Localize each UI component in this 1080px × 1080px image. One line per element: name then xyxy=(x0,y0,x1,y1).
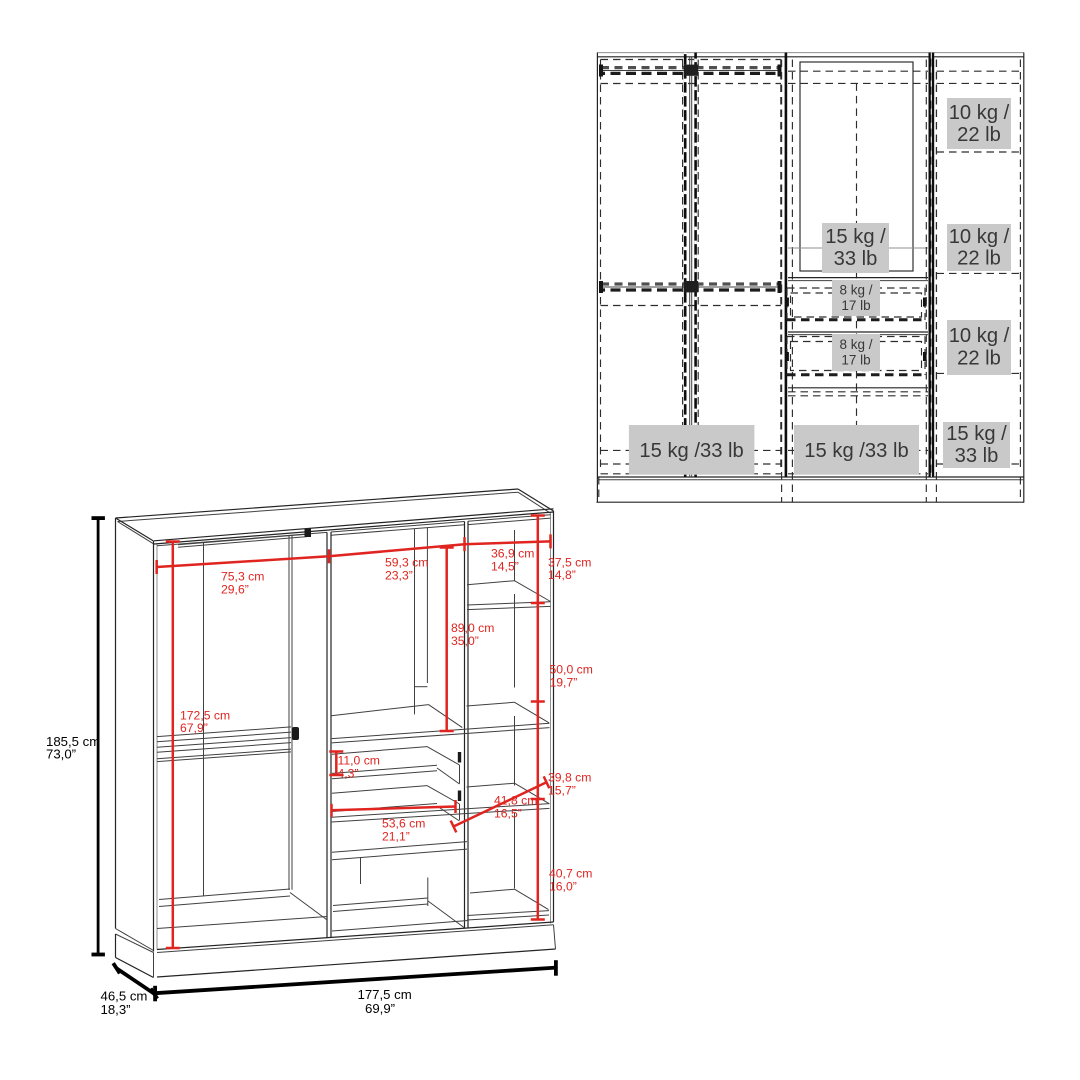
svg-text:29,6”: 29,6” xyxy=(221,583,249,597)
svg-text:89,0 cm: 89,0 cm xyxy=(451,621,494,635)
svg-text:8 kg /: 8 kg / xyxy=(839,283,872,298)
svg-text:41,8 cm: 41,8 cm xyxy=(494,794,537,808)
svg-text:39,8 cm: 39,8 cm xyxy=(548,771,591,785)
svg-text:59,3 cm: 59,3 cm xyxy=(385,556,428,570)
svg-text:75,3 cm: 75,3 cm xyxy=(221,570,264,584)
svg-text:17 lb: 17 lb xyxy=(841,298,870,313)
svg-text:4,3”: 4,3” xyxy=(338,767,359,781)
svg-text:10 kg /: 10 kg / xyxy=(949,226,1010,248)
svg-text:16,0”: 16,0” xyxy=(549,880,577,894)
svg-text:18,3”: 18,3” xyxy=(101,1002,131,1017)
svg-text:19,7”: 19,7” xyxy=(550,676,578,690)
svg-text:22 lb: 22 lb xyxy=(957,124,1001,146)
svg-text:33 lb: 33 lb xyxy=(955,445,999,467)
svg-text:11,0 cm: 11,0 cm xyxy=(338,754,380,768)
svg-text:14,5”: 14,5” xyxy=(491,560,519,574)
svg-text:177,5 cm: 177,5 cm xyxy=(358,987,412,1002)
svg-text:22 lb: 22 lb xyxy=(957,348,1001,370)
svg-text:15 kg /33 lb: 15 kg /33 lb xyxy=(804,440,908,462)
svg-text:40,7 cm: 40,7 cm xyxy=(549,867,592,881)
svg-text:67,9”: 67,9” xyxy=(180,721,208,735)
svg-text:21,1”: 21,1” xyxy=(382,830,410,844)
svg-text:36,9 cm: 36,9 cm xyxy=(491,547,534,561)
svg-text:15,7”: 15,7” xyxy=(548,784,576,798)
svg-text:14,8”: 14,8” xyxy=(548,568,576,582)
svg-text:15 kg /: 15 kg / xyxy=(825,226,886,248)
svg-text:16,5”: 16,5” xyxy=(494,807,522,821)
svg-text:15 kg /: 15 kg / xyxy=(946,423,1007,445)
svg-text:69,9”: 69,9” xyxy=(365,1001,395,1016)
svg-text:33 lb: 33 lb xyxy=(834,248,878,270)
svg-text:15 kg /33 lb: 15 kg /33 lb xyxy=(639,440,743,462)
svg-text:50,0 cm: 50,0 cm xyxy=(550,663,593,677)
svg-text:8 kg /: 8 kg / xyxy=(839,337,872,352)
svg-text:22 lb: 22 lb xyxy=(957,248,1001,270)
svg-text:35,0”: 35,0” xyxy=(451,634,479,648)
svg-text:17 lb: 17 lb xyxy=(841,353,870,368)
svg-text:53,6 cm: 53,6 cm xyxy=(382,817,425,831)
svg-text:23,3”: 23,3” xyxy=(385,569,413,583)
svg-text:73,0”: 73,0” xyxy=(46,747,76,762)
svg-text:10 kg /: 10 kg / xyxy=(949,325,1010,347)
svg-text:10 kg /: 10 kg / xyxy=(949,102,1010,124)
